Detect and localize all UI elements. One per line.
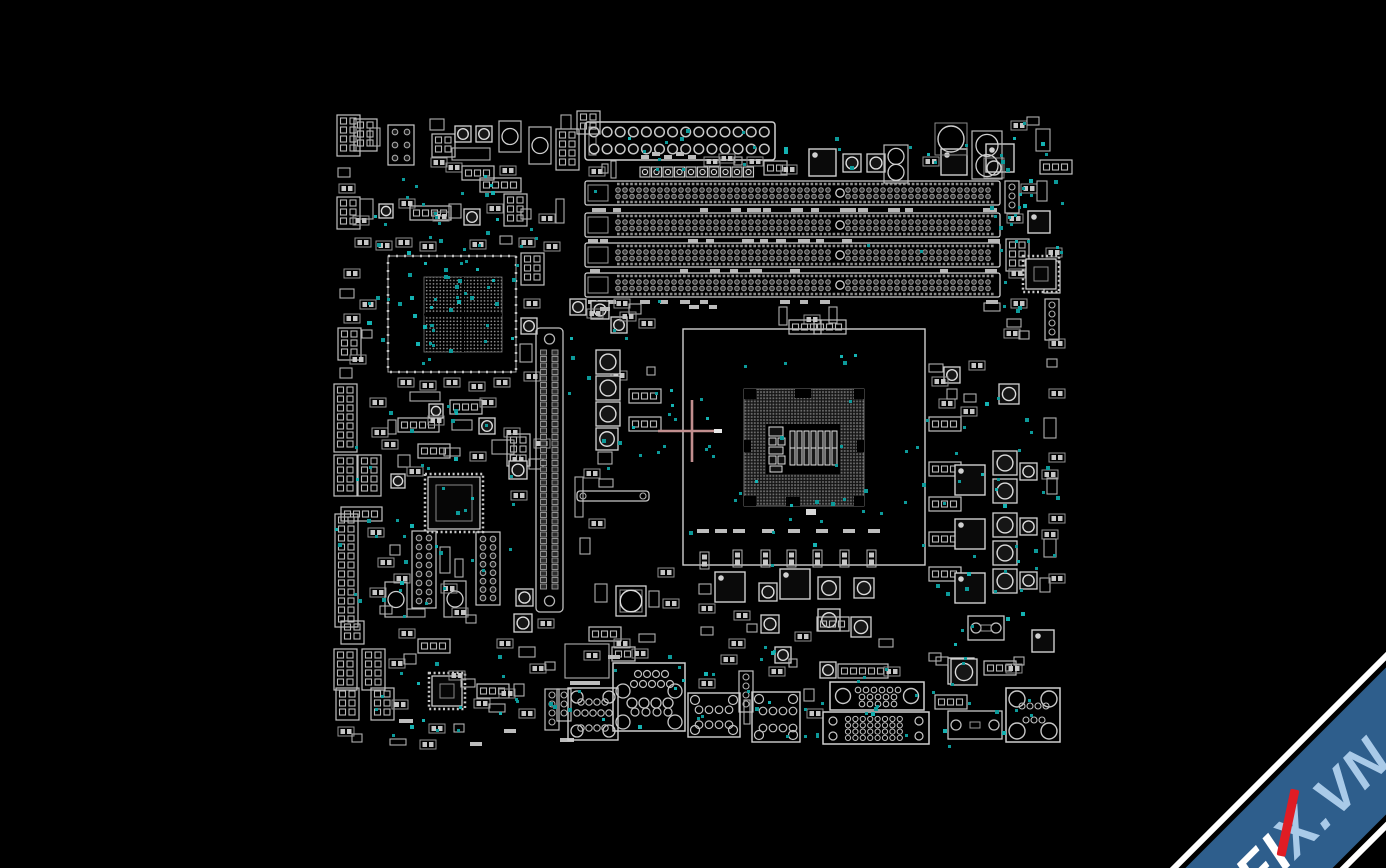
component-inductor[interactable] xyxy=(809,149,836,176)
via xyxy=(416,342,420,346)
via xyxy=(854,354,857,357)
via xyxy=(338,543,342,547)
silkscreen-label xyxy=(688,155,696,159)
via xyxy=(486,324,489,327)
via xyxy=(512,278,516,282)
via xyxy=(967,572,971,576)
component-mosfet[interactable] xyxy=(514,614,532,632)
via xyxy=(905,450,908,453)
via xyxy=(850,166,854,170)
via xyxy=(771,564,774,567)
via xyxy=(443,587,446,590)
component-mosfet[interactable] xyxy=(521,318,537,334)
via xyxy=(742,131,745,134)
via xyxy=(838,148,841,151)
via xyxy=(389,411,393,415)
via xyxy=(1056,246,1059,249)
component-mosfet[interactable] xyxy=(570,299,586,315)
via xyxy=(708,445,711,448)
via xyxy=(965,587,969,591)
component-mosfet[interactable] xyxy=(464,209,480,225)
via xyxy=(927,153,930,156)
via xyxy=(1003,305,1006,308)
via xyxy=(804,708,807,711)
via xyxy=(428,358,431,361)
via xyxy=(962,662,965,665)
via xyxy=(934,161,937,164)
via xyxy=(705,448,708,451)
via xyxy=(704,672,708,676)
via xyxy=(922,544,925,547)
via xyxy=(403,535,406,538)
via xyxy=(997,397,1000,400)
via xyxy=(862,510,865,513)
via xyxy=(464,509,467,512)
via xyxy=(1008,216,1011,219)
component-mosfet[interactable] xyxy=(516,589,533,606)
via xyxy=(442,487,445,490)
via xyxy=(424,262,427,265)
via xyxy=(981,473,984,476)
via xyxy=(502,675,505,678)
via xyxy=(456,296,459,299)
component-mosfet[interactable] xyxy=(944,367,960,383)
via xyxy=(668,413,671,416)
via xyxy=(451,419,455,423)
via xyxy=(449,308,453,312)
component-mosfet[interactable] xyxy=(851,617,871,637)
via xyxy=(1000,249,1003,252)
via xyxy=(1042,491,1045,494)
silkscreen-label xyxy=(664,155,672,159)
via xyxy=(520,245,523,248)
via xyxy=(478,244,481,247)
via xyxy=(1034,549,1038,553)
via xyxy=(455,412,458,415)
via xyxy=(1045,153,1048,156)
via xyxy=(367,519,371,523)
via xyxy=(686,129,690,133)
via xyxy=(951,683,954,686)
via xyxy=(689,531,693,535)
via xyxy=(381,338,385,342)
via xyxy=(438,222,441,225)
via xyxy=(1015,709,1018,712)
via xyxy=(485,193,489,197)
silkscreen-label xyxy=(715,529,727,533)
via xyxy=(400,581,404,585)
via xyxy=(1023,122,1026,125)
via xyxy=(435,662,439,666)
via xyxy=(747,690,750,693)
via xyxy=(946,592,950,596)
via xyxy=(1060,251,1063,254)
via xyxy=(871,712,875,716)
via xyxy=(1015,240,1018,243)
via xyxy=(384,223,387,226)
via xyxy=(358,599,362,603)
via xyxy=(369,466,372,469)
component-mosfet[interactable] xyxy=(1020,518,1037,535)
via xyxy=(915,694,918,697)
via xyxy=(864,489,868,493)
component-mosfet[interactable] xyxy=(596,376,620,400)
via xyxy=(835,464,838,467)
via xyxy=(1053,554,1056,557)
via xyxy=(415,185,418,188)
via xyxy=(471,559,474,562)
via xyxy=(909,146,912,149)
via xyxy=(682,679,685,682)
via xyxy=(821,702,824,705)
via xyxy=(553,705,557,709)
boardview-viewport[interactable]: HNFIX.VN xyxy=(0,0,1386,868)
via xyxy=(484,340,487,343)
via xyxy=(760,658,763,661)
via xyxy=(429,342,432,345)
via xyxy=(1017,560,1020,563)
component-mosfet[interactable] xyxy=(1020,572,1037,589)
component-mosfet[interactable] xyxy=(596,350,620,374)
via xyxy=(849,400,852,403)
via xyxy=(368,321,372,325)
component-mosfet[interactable] xyxy=(820,662,836,678)
via xyxy=(602,439,606,443)
silkscreen-label xyxy=(733,529,745,533)
via xyxy=(516,264,519,267)
via xyxy=(926,419,929,422)
via xyxy=(410,725,414,729)
component-mosfet[interactable] xyxy=(999,384,1019,404)
via xyxy=(712,455,715,458)
via xyxy=(1018,306,1022,310)
via xyxy=(772,531,775,534)
via xyxy=(471,497,474,500)
via xyxy=(1030,194,1033,197)
via xyxy=(789,518,792,521)
via xyxy=(658,158,661,161)
component-inductor[interactable] xyxy=(780,569,810,599)
via xyxy=(1006,617,1010,621)
via xyxy=(784,147,788,151)
silkscreen-label xyxy=(788,529,800,533)
via xyxy=(712,673,715,676)
via xyxy=(1013,137,1016,140)
via xyxy=(435,216,438,219)
via xyxy=(985,402,989,406)
via xyxy=(755,480,758,483)
via xyxy=(678,666,681,669)
silkscreen-label xyxy=(600,307,610,311)
via xyxy=(1001,160,1005,164)
via xyxy=(375,708,378,711)
via xyxy=(587,376,591,380)
via xyxy=(491,191,495,195)
via xyxy=(665,141,668,144)
via xyxy=(753,146,756,149)
via xyxy=(954,643,957,646)
silkscreen-label xyxy=(641,155,649,159)
via xyxy=(530,228,533,231)
via xyxy=(680,137,684,141)
via xyxy=(657,451,660,454)
via xyxy=(880,512,883,515)
component-mosfet[interactable] xyxy=(993,451,1017,475)
via xyxy=(804,735,807,738)
via xyxy=(432,329,435,332)
via xyxy=(463,248,466,251)
via xyxy=(355,446,358,449)
via xyxy=(639,454,642,457)
component-mosfet[interactable] xyxy=(993,541,1017,565)
via xyxy=(434,212,437,215)
pcb-board-drawing[interactable] xyxy=(0,0,1386,868)
silkscreen-label xyxy=(709,305,717,309)
via xyxy=(786,735,789,738)
via xyxy=(831,502,835,506)
component-mosfet[interactable] xyxy=(391,474,405,488)
via xyxy=(422,203,425,206)
via xyxy=(815,500,819,504)
via xyxy=(739,492,742,495)
component-mosfet[interactable] xyxy=(759,583,777,601)
via xyxy=(943,729,947,733)
silkscreen-label xyxy=(868,529,880,533)
via xyxy=(490,184,493,187)
component-inductor[interactable] xyxy=(941,149,967,175)
silkscreen-label xyxy=(697,529,709,533)
via xyxy=(843,498,846,501)
via xyxy=(476,268,479,271)
component-mosfet[interactable] xyxy=(854,578,874,598)
via xyxy=(963,426,966,429)
component-mosfet[interactable] xyxy=(867,154,885,172)
via xyxy=(432,344,435,347)
via xyxy=(449,349,453,353)
via xyxy=(995,488,998,491)
via xyxy=(743,163,746,166)
via xyxy=(392,734,395,737)
via xyxy=(375,535,378,538)
silkscreen-label xyxy=(652,152,660,156)
component-mosfet[interactable] xyxy=(455,126,471,142)
via xyxy=(614,669,617,672)
via xyxy=(813,543,817,547)
via xyxy=(995,710,999,714)
via xyxy=(457,300,461,304)
via xyxy=(454,457,458,461)
via xyxy=(465,260,468,263)
via xyxy=(1027,240,1030,243)
via xyxy=(1056,496,1060,500)
via xyxy=(668,655,672,659)
via xyxy=(410,429,414,433)
via xyxy=(628,137,631,140)
via xyxy=(916,446,919,449)
via xyxy=(435,545,438,548)
via xyxy=(509,548,512,551)
via xyxy=(594,190,597,193)
via xyxy=(816,733,819,736)
via xyxy=(470,296,474,300)
via xyxy=(404,560,408,564)
via xyxy=(1030,714,1033,717)
via xyxy=(835,137,839,141)
via xyxy=(1004,281,1007,284)
via xyxy=(578,690,581,693)
via xyxy=(994,215,997,218)
via xyxy=(1004,570,1007,573)
via xyxy=(840,355,843,358)
via xyxy=(482,569,485,572)
via xyxy=(1010,223,1013,226)
silkscreen-label xyxy=(504,729,516,733)
via xyxy=(674,687,677,690)
via xyxy=(460,262,463,265)
via xyxy=(968,702,971,705)
via xyxy=(335,528,338,531)
via xyxy=(638,725,642,729)
via xyxy=(768,701,771,704)
via xyxy=(408,273,412,277)
via xyxy=(973,555,976,558)
via xyxy=(625,337,628,340)
via xyxy=(1003,504,1007,508)
via xyxy=(410,524,414,528)
via xyxy=(656,168,659,171)
via xyxy=(1021,612,1025,616)
component-mosfet[interactable] xyxy=(761,615,779,633)
via xyxy=(755,707,759,711)
via xyxy=(568,392,571,395)
via xyxy=(461,192,464,195)
via xyxy=(943,502,946,505)
via xyxy=(1061,202,1064,205)
via xyxy=(570,337,573,340)
component-ic-qfp[interactable] xyxy=(429,673,465,709)
component-mosfet[interactable] xyxy=(818,577,840,599)
silkscreen-label xyxy=(689,305,699,309)
via xyxy=(486,231,490,235)
via xyxy=(402,178,405,181)
via xyxy=(464,292,467,295)
via xyxy=(1018,449,1021,452)
via xyxy=(376,296,380,300)
via xyxy=(549,702,553,706)
via xyxy=(487,286,490,289)
via xyxy=(457,729,460,732)
via xyxy=(398,302,402,306)
via xyxy=(784,362,787,365)
via xyxy=(422,719,425,722)
via xyxy=(865,712,868,715)
via xyxy=(670,389,673,392)
via xyxy=(1046,466,1050,470)
via xyxy=(455,285,459,289)
component-ic-qfp[interactable] xyxy=(425,474,483,532)
via xyxy=(1006,168,1010,172)
silkscreen-label xyxy=(570,681,600,685)
component-inductor[interactable] xyxy=(955,519,985,549)
component-mosfet[interactable] xyxy=(596,428,618,450)
silkscreen-label xyxy=(470,742,482,746)
silkscreen-label xyxy=(676,152,684,156)
via xyxy=(955,452,958,455)
via xyxy=(790,504,793,507)
component-mosfet[interactable] xyxy=(993,513,1017,537)
component-inductor[interactable] xyxy=(1028,211,1050,233)
via xyxy=(867,244,870,247)
silkscreen-label xyxy=(816,529,828,533)
via xyxy=(431,324,434,327)
via xyxy=(444,275,448,279)
via xyxy=(682,168,685,171)
via xyxy=(965,144,968,147)
via xyxy=(421,464,424,467)
via xyxy=(843,361,847,365)
via xyxy=(439,551,443,555)
via xyxy=(1018,206,1021,209)
via xyxy=(734,499,737,502)
via xyxy=(407,251,411,255)
via xyxy=(374,215,377,218)
via xyxy=(1028,699,1031,702)
via xyxy=(516,700,519,703)
via xyxy=(354,593,357,596)
via xyxy=(700,398,703,401)
component-mosfet[interactable] xyxy=(596,402,620,426)
via xyxy=(863,676,866,679)
component-ic-qfp[interactable] xyxy=(1023,256,1059,292)
via xyxy=(840,445,843,448)
via xyxy=(430,306,433,309)
via xyxy=(571,356,575,360)
via xyxy=(498,655,502,659)
via xyxy=(1025,418,1029,422)
via xyxy=(459,706,462,709)
via xyxy=(1020,589,1023,592)
via xyxy=(387,298,390,301)
via xyxy=(499,712,502,715)
via xyxy=(1002,731,1006,735)
via xyxy=(1041,142,1045,146)
via xyxy=(780,436,784,440)
via xyxy=(602,718,605,721)
component-mosfet[interactable] xyxy=(476,126,492,142)
via xyxy=(994,590,997,593)
via xyxy=(618,441,622,445)
via xyxy=(377,243,381,247)
via xyxy=(368,302,371,305)
component-inductor[interactable] xyxy=(715,572,745,602)
component-mosfet[interactable] xyxy=(379,204,393,218)
component-mosfet[interactable] xyxy=(818,609,840,631)
via xyxy=(607,467,610,470)
via xyxy=(492,279,495,282)
via xyxy=(484,175,487,178)
via xyxy=(356,478,359,481)
component-inductor[interactable] xyxy=(955,573,985,603)
via xyxy=(568,708,572,712)
via xyxy=(697,717,700,720)
via xyxy=(961,629,964,632)
via xyxy=(936,584,940,588)
via xyxy=(932,691,935,694)
component-mosfet[interactable] xyxy=(1020,463,1037,480)
via xyxy=(423,325,427,329)
component-inductor[interactable] xyxy=(1032,630,1054,652)
via xyxy=(429,236,432,239)
